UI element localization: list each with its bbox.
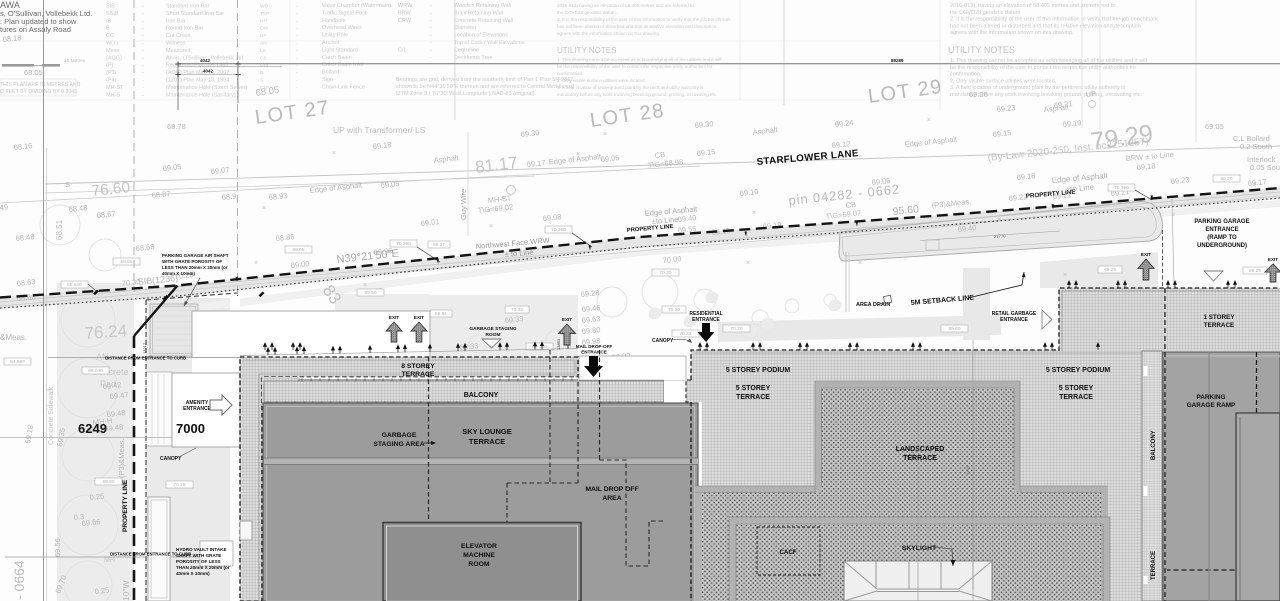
svg-text:×: × bbox=[603, 131, 607, 138]
svg-text:GARBAGE STAGING: GARBAGE STAGING bbox=[469, 326, 517, 332]
svg-text:10"W: 10"W bbox=[121, 581, 131, 601]
svg-text:the CGVD28 geodetic datum.: the CGVD28 geodetic datum. bbox=[557, 10, 617, 15]
svg-text:69.60: 69.60 bbox=[948, 326, 960, 332]
svg-text:GARAGE RAMP: GARAGE RAMP bbox=[1187, 402, 1236, 409]
svg-text:Location of Elevations: Location of Elevations bbox=[454, 33, 508, 39]
svg-text:CANOPY: CANOPY bbox=[160, 456, 182, 462]
svg-text:Short Standard Iron Bar: Short Standard Iron Bar bbox=[166, 11, 224, 17]
svg-text:PROPERTY LINE: PROPERTY LINE bbox=[122, 479, 129, 532]
svg-text:70.390: 70.390 bbox=[1114, 185, 1129, 191]
svg-text:WRW: WRW bbox=[398, 3, 413, 9]
svg-text:PARKING GARAGE: PARKING GARAGE bbox=[1194, 219, 1249, 225]
svg-text:0.25: 0.25 bbox=[94, 586, 109, 596]
svg-text:THIS PLAN ARE IN METRES AND: THIS PLAN ARE IN METRES AND bbox=[0, 82, 81, 88]
svg-text:UP with Transformer/ LS: UP with Transformer/ LS bbox=[333, 125, 426, 135]
svg-text:×: × bbox=[858, 260, 862, 267]
svg-text:EXIT: EXIT bbox=[562, 317, 572, 322]
svg-text:Meas: Meas bbox=[106, 48, 120, 54]
svg-text:1. This drawing cannot be acc: 1. This drawing cannot be accepted as ac… bbox=[950, 58, 1147, 64]
svg-text:mandatory before any work invo: mandatory before any work involving brea… bbox=[557, 92, 717, 97]
svg-text:-: - bbox=[142, 26, 144, 32]
svg-text:70.32: 70.32 bbox=[511, 307, 523, 313]
svg-text:69.18: 69.18 bbox=[1136, 161, 1155, 172]
svg-text:UP: UP bbox=[1085, 89, 1096, 99]
svg-text:-: - bbox=[142, 85, 144, 91]
svg-text:-: - bbox=[430, 55, 432, 61]
svg-text:×: × bbox=[262, 205, 266, 212]
svg-text:21770: 21770 bbox=[994, 233, 1007, 239]
svg-text:Standard Iron Bar: Standard Iron Bar bbox=[166, 4, 210, 10]
svg-text:-: - bbox=[430, 18, 432, 24]
svg-text:70.30: 70.30 bbox=[659, 270, 671, 276]
svg-text:Brick Retaining Wall: Brick Retaining Wall bbox=[454, 10, 503, 16]
svg-text:confirmation.: confirmation. bbox=[557, 71, 583, 76]
svg-text:be the responsibility of the u: be the responsibility of the user to con… bbox=[950, 65, 1136, 71]
svg-text:MH-S: MH-S bbox=[106, 92, 120, 98]
svg-text:Deciduous Tree: Deciduous Tree bbox=[454, 55, 493, 61]
svg-text:agrees with the information sh: agrees with the information shown on thi… bbox=[557, 31, 660, 36]
svg-text:Overhead Wires: Overhead Wires bbox=[322, 25, 362, 31]
svg-text:×: × bbox=[927, 117, 931, 124]
svg-text:Valve Chamber (Watermain): Valve Chamber (Watermain) bbox=[322, 3, 391, 9]
svg-text:MACHINE: MACHINE bbox=[463, 552, 495, 559]
svg-text:70.30: 70.30 bbox=[668, 307, 680, 313]
svg-text:EXIT: EXIT bbox=[389, 315, 399, 320]
svg-text:69.27: 69.27 bbox=[433, 242, 445, 248]
svg-text:1. This drawing cannot be acc: 1. This drawing cannot be accepted as ac… bbox=[557, 57, 721, 62]
svg-text:-: - bbox=[142, 92, 144, 98]
svg-text:Bearings are grid, derived fro: Bearings are grid, derived from the sout… bbox=[396, 77, 575, 83]
svg-text:69.040: 69.040 bbox=[88, 368, 103, 374]
svg-text:TERRACE: TERRACE bbox=[736, 394, 770, 401]
svg-text:W(T): W(T) bbox=[106, 41, 118, 47]
svg-text:TERRACE: TERRACE bbox=[1151, 551, 1157, 580]
svg-text:CC: CC bbox=[106, 33, 114, 39]
svg-text:Handhole: Handhole bbox=[322, 18, 346, 24]
svg-text:70.25: 70.25 bbox=[173, 482, 185, 488]
svg-text:(RAMP TO: (RAMP TO bbox=[1207, 235, 1237, 241]
svg-text:MTM Zone 9 ( 76°30' West Longi: MTM Zone 9 ( 76°30' West Longitude ) NAD… bbox=[396, 91, 537, 97]
svg-text:WD: WD bbox=[260, 4, 269, 10]
svg-text:-: - bbox=[430, 47, 432, 53]
svg-text:1 STOREY: 1 STOREY bbox=[1203, 314, 1235, 321]
svg-text:CACF: CACF bbox=[779, 549, 796, 556]
svg-text:O FEET BY DIVIDING BY 0.3048: O FEET BY DIVIDING BY 0.3048 bbox=[0, 89, 77, 95]
svg-text:13853: 13853 bbox=[556, 338, 561, 350]
svg-text:69.05: 69.05 bbox=[1205, 122, 1224, 131]
svg-text:Catch Basin Inlet: Catch Basin Inlet bbox=[322, 62, 364, 68]
svg-text:CB: CB bbox=[260, 55, 267, 61]
svg-text:69.20: 69.20 bbox=[1220, 176, 1232, 182]
svg-text:×: × bbox=[997, 217, 1001, 224]
svg-text:70.360: 70.360 bbox=[396, 241, 411, 247]
svg-text:4042: 4042 bbox=[203, 69, 214, 74]
svg-text:Witness: Witness bbox=[166, 41, 186, 47]
svg-text:tures on Assaly Road: tures on Assaly Road bbox=[0, 25, 71, 34]
svg-text:×: × bbox=[1171, 212, 1175, 219]
svg-text:PARKING GARAGE AIR SHAFT: PARKING GARAGE AIR SHAFT bbox=[162, 253, 229, 258]
svg-text:70.360: 70.360 bbox=[551, 227, 566, 233]
svg-text:-: - bbox=[142, 55, 144, 61]
svg-text:B: B bbox=[106, 26, 110, 32]
svg-text:the CGVD28 geodetic datum.: the CGVD28 geodetic datum. bbox=[950, 10, 1022, 16]
svg-text:70.30: 70.30 bbox=[730, 326, 742, 332]
svg-text:SSIB: SSIB bbox=[106, 11, 119, 17]
svg-text:WITH GRATE POROSITY OF: WITH GRATE POROSITY OF bbox=[162, 259, 222, 264]
svg-text:UP: UP bbox=[260, 33, 267, 39]
svg-text:-: - bbox=[142, 63, 144, 69]
svg-text:Bollard: Bollard bbox=[322, 70, 339, 76]
svg-text:64.980: 64.980 bbox=[10, 359, 25, 365]
svg-text:(AOG) Plan May 14, 2007: (AOG) Plan May 14, 2007 bbox=[166, 70, 229, 76]
svg-text:DISTANCE FROM ENTRANCE TO CURB: DISTANCE FROM ENTRANCE TO CURB bbox=[105, 356, 186, 361]
svg-text:4042: 4042 bbox=[200, 58, 211, 63]
svg-text:2016-013), having an elevation: 2016-013), having an elevation of 68.405… bbox=[950, 3, 1115, 9]
svg-text:69.06: 69.06 bbox=[969, 90, 988, 99]
svg-text:LANDSCAPED: LANDSCAPED bbox=[896, 446, 945, 453]
svg-text:-: - bbox=[430, 10, 432, 16]
svg-text:be the responsibility of the u: be the responsibility of the user to con… bbox=[557, 64, 713, 69]
svg-text:8 STOREY: 8 STOREY bbox=[401, 363, 435, 370]
svg-text:GARBAGE: GARBAGE bbox=[382, 432, 417, 439]
svg-text:69.05: 69.05 bbox=[292, 247, 304, 253]
svg-text:MAIL DROP OFF: MAIL DROP OFF bbox=[585, 486, 638, 493]
svg-text:2. It is the responsibility o: 2. It is the responsibility of the user … bbox=[557, 17, 731, 22]
svg-text:68.840: 68.840 bbox=[67, 282, 82, 288]
svg-text:C/L: C/L bbox=[398, 47, 407, 53]
svg-text:ENTRANCE: ENTRANCE bbox=[581, 350, 607, 355]
svg-text:Concrete Retaining Wall: Concrete Retaining Wall bbox=[454, 18, 513, 24]
svg-text:LESS THAN 20mm X 20mm (or: LESS THAN 20mm X 20mm (or bbox=[162, 265, 228, 270]
svg-text:Catch Basin: Catch Basin bbox=[322, 55, 352, 61]
svg-text:69.50: 69.50 bbox=[364, 290, 376, 296]
svg-text:5 STOREY PODIUM: 5 STOREY PODIUM bbox=[726, 367, 790, 374]
svg-text:-: - bbox=[142, 78, 144, 84]
svg-text:-: - bbox=[430, 25, 432, 31]
svg-text:-: - bbox=[430, 3, 432, 9]
svg-text:0.3: 0.3 bbox=[73, 512, 84, 522]
svg-text:68.05: 68.05 bbox=[24, 68, 43, 77]
svg-text:POROSITY OF LESS: POROSITY OF LESS bbox=[176, 559, 221, 564]
svg-text:has not been altered or distur: has not been altered or disturbed and th… bbox=[950, 23, 1141, 29]
svg-text:MAIL DROP-OFF: MAIL DROP-OFF bbox=[576, 344, 613, 349]
svg-text:UTILITY NOTES: UTILITY NOTES bbox=[948, 45, 1015, 55]
svg-text:Chain Link Fence: Chain Link Fence bbox=[322, 84, 365, 90]
svg-text:69.25: 69.25 bbox=[1104, 267, 1116, 273]
svg-text:SKY LOUNGE: SKY LOUNGE bbox=[462, 427, 511, 436]
svg-text:69.25: 69.25 bbox=[1249, 268, 1261, 274]
svg-text:TSP: TSP bbox=[260, 11, 269, 17]
svg-text:Utility Pole: Utility Pole bbox=[322, 33, 348, 39]
svg-text:-: - bbox=[142, 41, 144, 47]
svg-text:Measured: Measured bbox=[166, 48, 190, 54]
svg-text:-: - bbox=[142, 33, 144, 39]
svg-text:×: × bbox=[1063, 272, 1067, 279]
svg-text:(1287) Plan May 13, 1994: (1287) Plan May 13, 1994 bbox=[166, 78, 229, 84]
svg-text:×: × bbox=[332, 150, 336, 157]
svg-text:68.65: 68.65 bbox=[120, 259, 132, 265]
svg-text:5 STOREY: 5 STOREY bbox=[1059, 385, 1094, 392]
svg-text:×: × bbox=[254, 260, 258, 267]
svg-text:3. A field location of underg: 3. A field location of underground plant… bbox=[557, 85, 704, 90]
svg-text:Iron Bar: Iron Bar bbox=[166, 18, 186, 24]
svg-text:68.51: 68.51 bbox=[55, 219, 64, 240]
svg-text:68.9: 68.9 bbox=[221, 192, 236, 202]
svg-text:68.78: 68.78 bbox=[167, 122, 186, 131]
svg-text:(P4): (P4) bbox=[106, 78, 117, 84]
svg-text:Concrete Sidewalk: Concrete Sidewalk bbox=[48, 386, 55, 445]
svg-text:40mm X 10mm): 40mm X 10mm) bbox=[162, 271, 196, 276]
svg-text:TERRACE: TERRACE bbox=[469, 437, 505, 446]
svg-text:89289: 89289 bbox=[891, 58, 904, 63]
svg-text:SKYLIGHT: SKYLIGHT bbox=[902, 545, 937, 552]
svg-text:Light Standard: Light Standard bbox=[322, 47, 358, 53]
svg-text:49: 49 bbox=[0, 202, 9, 212]
svg-text:has not been altered or distur: has not been altered or disturbed and th… bbox=[557, 24, 717, 29]
svg-text:DISTANCE FROM ENTRANCE TO CURB: DISTANCE FROM ENTRANCE TO CURB bbox=[110, 552, 191, 557]
svg-text:2. It is the responsibility o: 2. It is the responsibility of the user … bbox=[950, 17, 1158, 23]
svg-text:EXIT: EXIT bbox=[1141, 252, 1151, 257]
svg-text:ROOM: ROOM bbox=[486, 332, 501, 338]
svg-text:TERRACE: TERRACE bbox=[402, 371, 435, 378]
svg-text:BRW: BRW bbox=[398, 10, 412, 16]
svg-text:0.05 South: 0.05 South bbox=[1250, 163, 1280, 172]
svg-text:CANOPY: CANOPY bbox=[652, 338, 674, 344]
svg-text:TERRACE: TERRACE bbox=[1204, 322, 1234, 329]
svg-text:ENTRANCE: ENTRANCE bbox=[1205, 227, 1238, 233]
svg-text:×: × bbox=[746, 260, 750, 267]
svg-text:76.24: 76.24 bbox=[84, 321, 128, 343]
svg-text:Traffic Signal Post: Traffic Signal Post bbox=[322, 10, 367, 16]
svg-text:10 Metres: 10 Metres bbox=[64, 58, 86, 64]
svg-text:Cut Cross: Cut Cross bbox=[166, 33, 191, 39]
svg-text:- 0664: - 0664 bbox=[11, 560, 27, 600]
svg-text:69.51: 69.51 bbox=[435, 311, 447, 317]
svg-text:UNDERGROUND): UNDERGROUND) bbox=[1197, 243, 1247, 249]
svg-text:ROOM: ROOM bbox=[468, 561, 489, 568]
svg-text:HH: HH bbox=[260, 18, 267, 24]
svg-text:Round Iron Bar: Round Iron Bar bbox=[166, 26, 203, 32]
svg-text:B: B bbox=[260, 70, 263, 76]
svg-text:BALCONY: BALCONY bbox=[464, 392, 499, 399]
svg-text:S: S bbox=[65, 180, 70, 189]
svg-text:S: S bbox=[260, 78, 263, 84]
svg-text:ENTRANCE: ENTRANCE bbox=[1000, 317, 1028, 323]
svg-text:69.56: 69.56 bbox=[53, 538, 62, 557]
svg-text:6249: 6249 bbox=[78, 421, 107, 436]
svg-text:×: × bbox=[752, 210, 756, 217]
svg-text:70.32: 70.32 bbox=[679, 331, 691, 337]
svg-text:confirmation.: confirmation. bbox=[950, 72, 982, 78]
svg-text:9148: 9148 bbox=[965, 465, 970, 475]
svg-text:0.2 South: 0.2 South bbox=[1240, 142, 1272, 151]
svg-text:-: - bbox=[142, 48, 144, 54]
svg-text:40mm X 10mm): 40mm X 10mm) bbox=[176, 571, 210, 576]
svg-text:shown to be N44°35'50"E thereo: shown to be N44°35'50"E thereon and are … bbox=[396, 84, 574, 90]
svg-text:AN: AN bbox=[260, 41, 267, 47]
svg-text:OW: OW bbox=[260, 26, 269, 32]
svg-text:-: - bbox=[142, 11, 144, 17]
svg-text:-: - bbox=[142, 4, 144, 10]
svg-text:TERRACE: TERRACE bbox=[1059, 394, 1093, 401]
svg-text:(P3)&Meas.: (P3)&Meas. bbox=[117, 438, 126, 478]
svg-text:-: - bbox=[142, 18, 144, 24]
svg-text:PARKING: PARKING bbox=[1197, 394, 1226, 401]
svg-text:agrees with the information sh: agrees with the information shown on thi… bbox=[950, 30, 1074, 36]
svg-text:2016-013) having an elevation: 2016-013) having an elevation of 68.405 … bbox=[557, 3, 694, 8]
svg-text:BALCONY: BALCONY bbox=[1151, 430, 1157, 460]
svg-text:Guy Wire: Guy Wire bbox=[459, 189, 468, 220]
svg-text:LS: LS bbox=[260, 48, 266, 54]
svg-text:ENTRANCE: ENTRANCE bbox=[692, 317, 720, 323]
svg-text:(AOG): (AOG) bbox=[106, 55, 122, 61]
svg-text:5 STOREY: 5 STOREY bbox=[736, 385, 771, 392]
svg-text:IB: IB bbox=[106, 18, 112, 24]
svg-text:TERRACE: TERRACE bbox=[903, 455, 937, 462]
svg-text:7000: 7000 bbox=[176, 421, 205, 436]
svg-text:Sign: Sign bbox=[322, 77, 333, 83]
svg-text:ELEVATOR: ELEVATOR bbox=[461, 543, 497, 550]
svg-text:Diameter: Diameter bbox=[454, 25, 476, 31]
svg-text:STAGING AREA: STAGING AREA bbox=[373, 441, 424, 448]
svg-text:×: × bbox=[489, 223, 493, 230]
svg-text:0.25: 0.25 bbox=[89, 492, 104, 502]
svg-text:UTILITY NOTES: UTILITY NOTES bbox=[557, 46, 616, 55]
svg-text:AREA DRAIN: AREA DRAIN bbox=[856, 302, 890, 308]
svg-text:13217: 13217 bbox=[142, 342, 147, 354]
svg-text:2. Only visible surface utili: 2. Only visible surface utilities were l… bbox=[950, 78, 1057, 84]
svg-text:Centreline: Centreline bbox=[454, 47, 479, 53]
svg-text:Wooden Retaining Wall: Wooden Retaining Wall bbox=[454, 3, 511, 9]
svg-text:ENTRANCE: ENTRANCE bbox=[183, 406, 211, 412]
svg-text:(P): (P) bbox=[106, 63, 114, 69]
svg-text:MH-ST: MH-ST bbox=[106, 85, 124, 91]
svg-text:-: - bbox=[142, 70, 144, 76]
svg-text:5 STOREY PODIUM: 5 STOREY PODIUM bbox=[1046, 367, 1110, 374]
svg-text:69.90: 69.90 bbox=[102, 479, 114, 485]
svg-text:Pad: Pad bbox=[100, 379, 116, 389]
svg-text:AREA: AREA bbox=[602, 495, 621, 502]
svg-text:SIB: SIB bbox=[106, 4, 115, 10]
svg-text:EXIT: EXIT bbox=[414, 315, 424, 320]
svg-text:(P3): (P3) bbox=[106, 70, 117, 76]
svg-text:-: - bbox=[430, 33, 432, 39]
svg-text:THAN 20mm X 20mm (or: THAN 20mm X 20mm (or bbox=[176, 565, 230, 570]
svg-text:Maintenance Hole (Sanitary): Maintenance Hole (Sanitary) bbox=[166, 92, 236, 98]
svg-text:&Meas.: &Meas. bbox=[0, 333, 27, 342]
svg-text:CRW: CRW bbox=[398, 18, 412, 24]
svg-text:EXIT: EXIT bbox=[1268, 257, 1278, 262]
svg-text:MH: MH bbox=[104, 557, 115, 564]
